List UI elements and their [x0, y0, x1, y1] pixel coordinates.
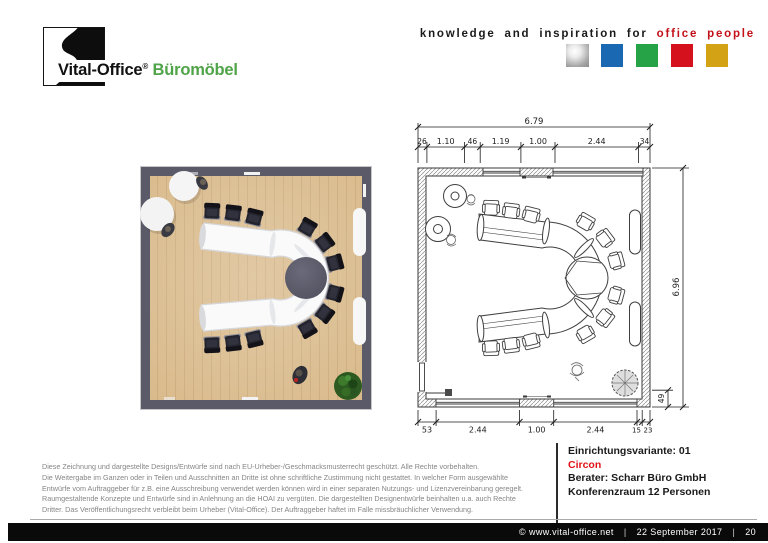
room-description: Konferenzraum 12 Personen: [568, 486, 710, 500]
brand-name: Vital-Office: [58, 61, 142, 79]
plant-3d: [334, 372, 362, 400]
svg-text:2.44: 2.44: [469, 426, 487, 435]
svg-text:46: 46: [468, 137, 478, 146]
legal-line: Die Weitergabe im Ganzen oder in Teilen …: [42, 473, 550, 484]
website-url: © www.vital-office.net: [519, 527, 614, 537]
consultant: Berater: Scharr Büro GmbH: [568, 472, 710, 486]
color-square-silver: [566, 44, 589, 67]
color-square-green: [636, 44, 659, 67]
plant-cad: [612, 370, 638, 396]
svg-text:1.00: 1.00: [528, 426, 546, 435]
svg-text:15: 15: [632, 427, 641, 435]
svg-text:49: 49: [657, 394, 666, 404]
svg-text:53: 53: [422, 426, 432, 435]
footer-rule: [30, 519, 757, 520]
variant-info-block: Einrichtungsvariante: 01 Circon Berater:…: [568, 445, 710, 499]
product-name: Circon: [568, 459, 710, 473]
svg-text:2.44: 2.44: [588, 137, 606, 146]
registered-mark: ®: [142, 62, 148, 71]
legal-line: Raumgestaltende Konzepte und Entwürfe si…: [42, 494, 550, 505]
svg-text:23: 23: [644, 427, 653, 435]
color-square-red: [671, 44, 694, 67]
legal-line: Diese Zeichnung und dargestellte Designs…: [42, 462, 550, 473]
date: 22 September 2017: [637, 527, 723, 537]
svg-text:2.44: 2.44: [586, 426, 604, 435]
color-square-blue: [601, 44, 624, 67]
brand-color-squares: [566, 44, 728, 67]
info-divider: [556, 443, 558, 523]
cad-floor-plan: 6.79 26 1.10 46 1.19 1.00 2.44 34 53 2.4…: [405, 115, 720, 441]
catalog-page: Vital-Office® Büromöbel knowledge and in…: [0, 0, 768, 543]
svg-text:1.00: 1.00: [529, 137, 547, 146]
logo-wordmark: Vital-Office® Büromöbel: [54, 60, 242, 82]
tagline: knowledge and inspiration for office peo…: [420, 28, 755, 40]
legal-disclaimer: Diese Zeichnung und dargestellte Designs…: [42, 462, 550, 516]
separator: |: [732, 527, 735, 537]
legal-line: Dritter. Das Veröffentlichungsrecht verb…: [42, 505, 550, 516]
dim-total-height: 6.96: [672, 278, 682, 297]
svg-text:26: 26: [417, 137, 427, 146]
separator: |: [624, 527, 627, 537]
svg-text:1.19: 1.19: [492, 137, 510, 146]
3d-plan-canvas: [140, 166, 372, 410]
color-square-gold: [706, 44, 729, 67]
variant-label: Einrichtungsvariante: 01: [568, 445, 710, 459]
svg-text:34: 34: [640, 137, 650, 146]
svg-text:1.10: 1.10: [437, 137, 455, 146]
3d-floor-plan-render: [140, 166, 372, 410]
product-line-name: Büromöbel: [153, 61, 238, 79]
page-number: 20: [745, 527, 756, 537]
round-media-table-3d: [285, 257, 327, 299]
bottom-bar: © www.vital-office.net | 22 September 20…: [8, 523, 768, 541]
cad-canvas: 6.79 26 1.10 46 1.19 1.00 2.44 34 53 2.4…: [405, 115, 720, 441]
legal-line: Entwürfe vom Auftraggeber für z.B. eine …: [42, 484, 550, 495]
dim-total-width: 6.79: [525, 117, 544, 127]
tagline-red: office people: [657, 28, 755, 40]
tagline-black: knowledge and inspiration for: [420, 28, 648, 40]
